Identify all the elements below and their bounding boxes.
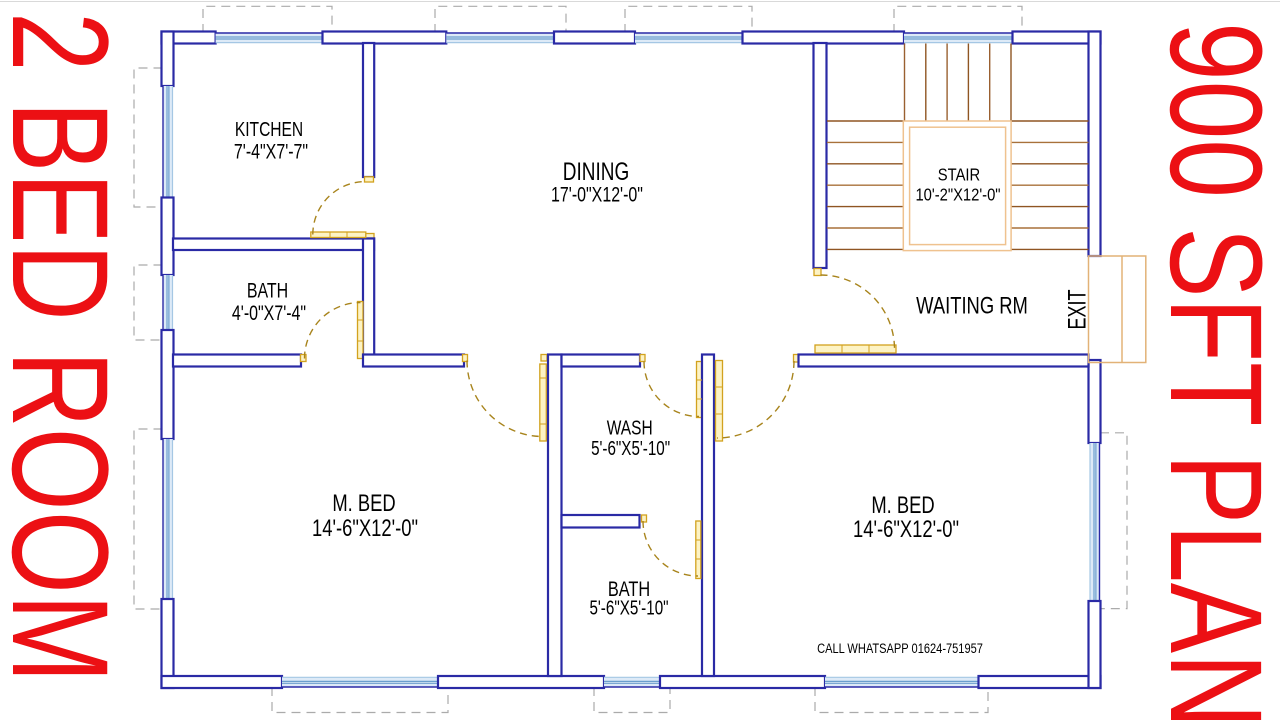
svg-text:EXIT: EXIT — [1063, 290, 1092, 330]
svg-text:CALL WHATSAPP 01624-751957: CALL WHATSAPP 01624-751957 — [817, 640, 983, 657]
svg-text:14'-6"X12'-0": 14'-6"X12'-0" — [853, 516, 959, 543]
svg-text:WASH: WASH — [607, 416, 653, 439]
svg-text:10'-2"X12'-0": 10'-2"X12'-0" — [915, 186, 1000, 205]
svg-text:2 BED ROOM: 2 BED ROOM — [0, 12, 136, 683]
svg-text:STAIR: STAIR — [938, 166, 980, 185]
svg-text:WAITING RM: WAITING RM — [916, 292, 1028, 319]
svg-text:900 SFT PLAN: 900 SFT PLAN — [1142, 22, 1280, 720]
svg-text:M. BED: M. BED — [332, 490, 395, 517]
svg-text:14'-6"X12'-0": 14'-6"X12'-0" — [312, 514, 418, 541]
svg-text:M. BED: M. BED — [871, 492, 934, 519]
svg-text:4'-0"X7'-4": 4'-0"X7'-4" — [232, 301, 306, 325]
svg-text:KITCHEN: KITCHEN — [235, 118, 303, 141]
svg-text:5'-6"X5'-10": 5'-6"X5'-10" — [589, 596, 668, 619]
svg-text:DINING: DINING — [563, 157, 629, 185]
svg-text:BATH: BATH — [247, 278, 288, 302]
svg-text:17'-0"X12'-0": 17'-0"X12'-0" — [551, 182, 643, 206]
svg-text:5'-6"X5'-10": 5'-6"X5'-10" — [591, 437, 670, 460]
svg-text:7'-4"X7'-7": 7'-4"X7'-7" — [234, 140, 308, 164]
